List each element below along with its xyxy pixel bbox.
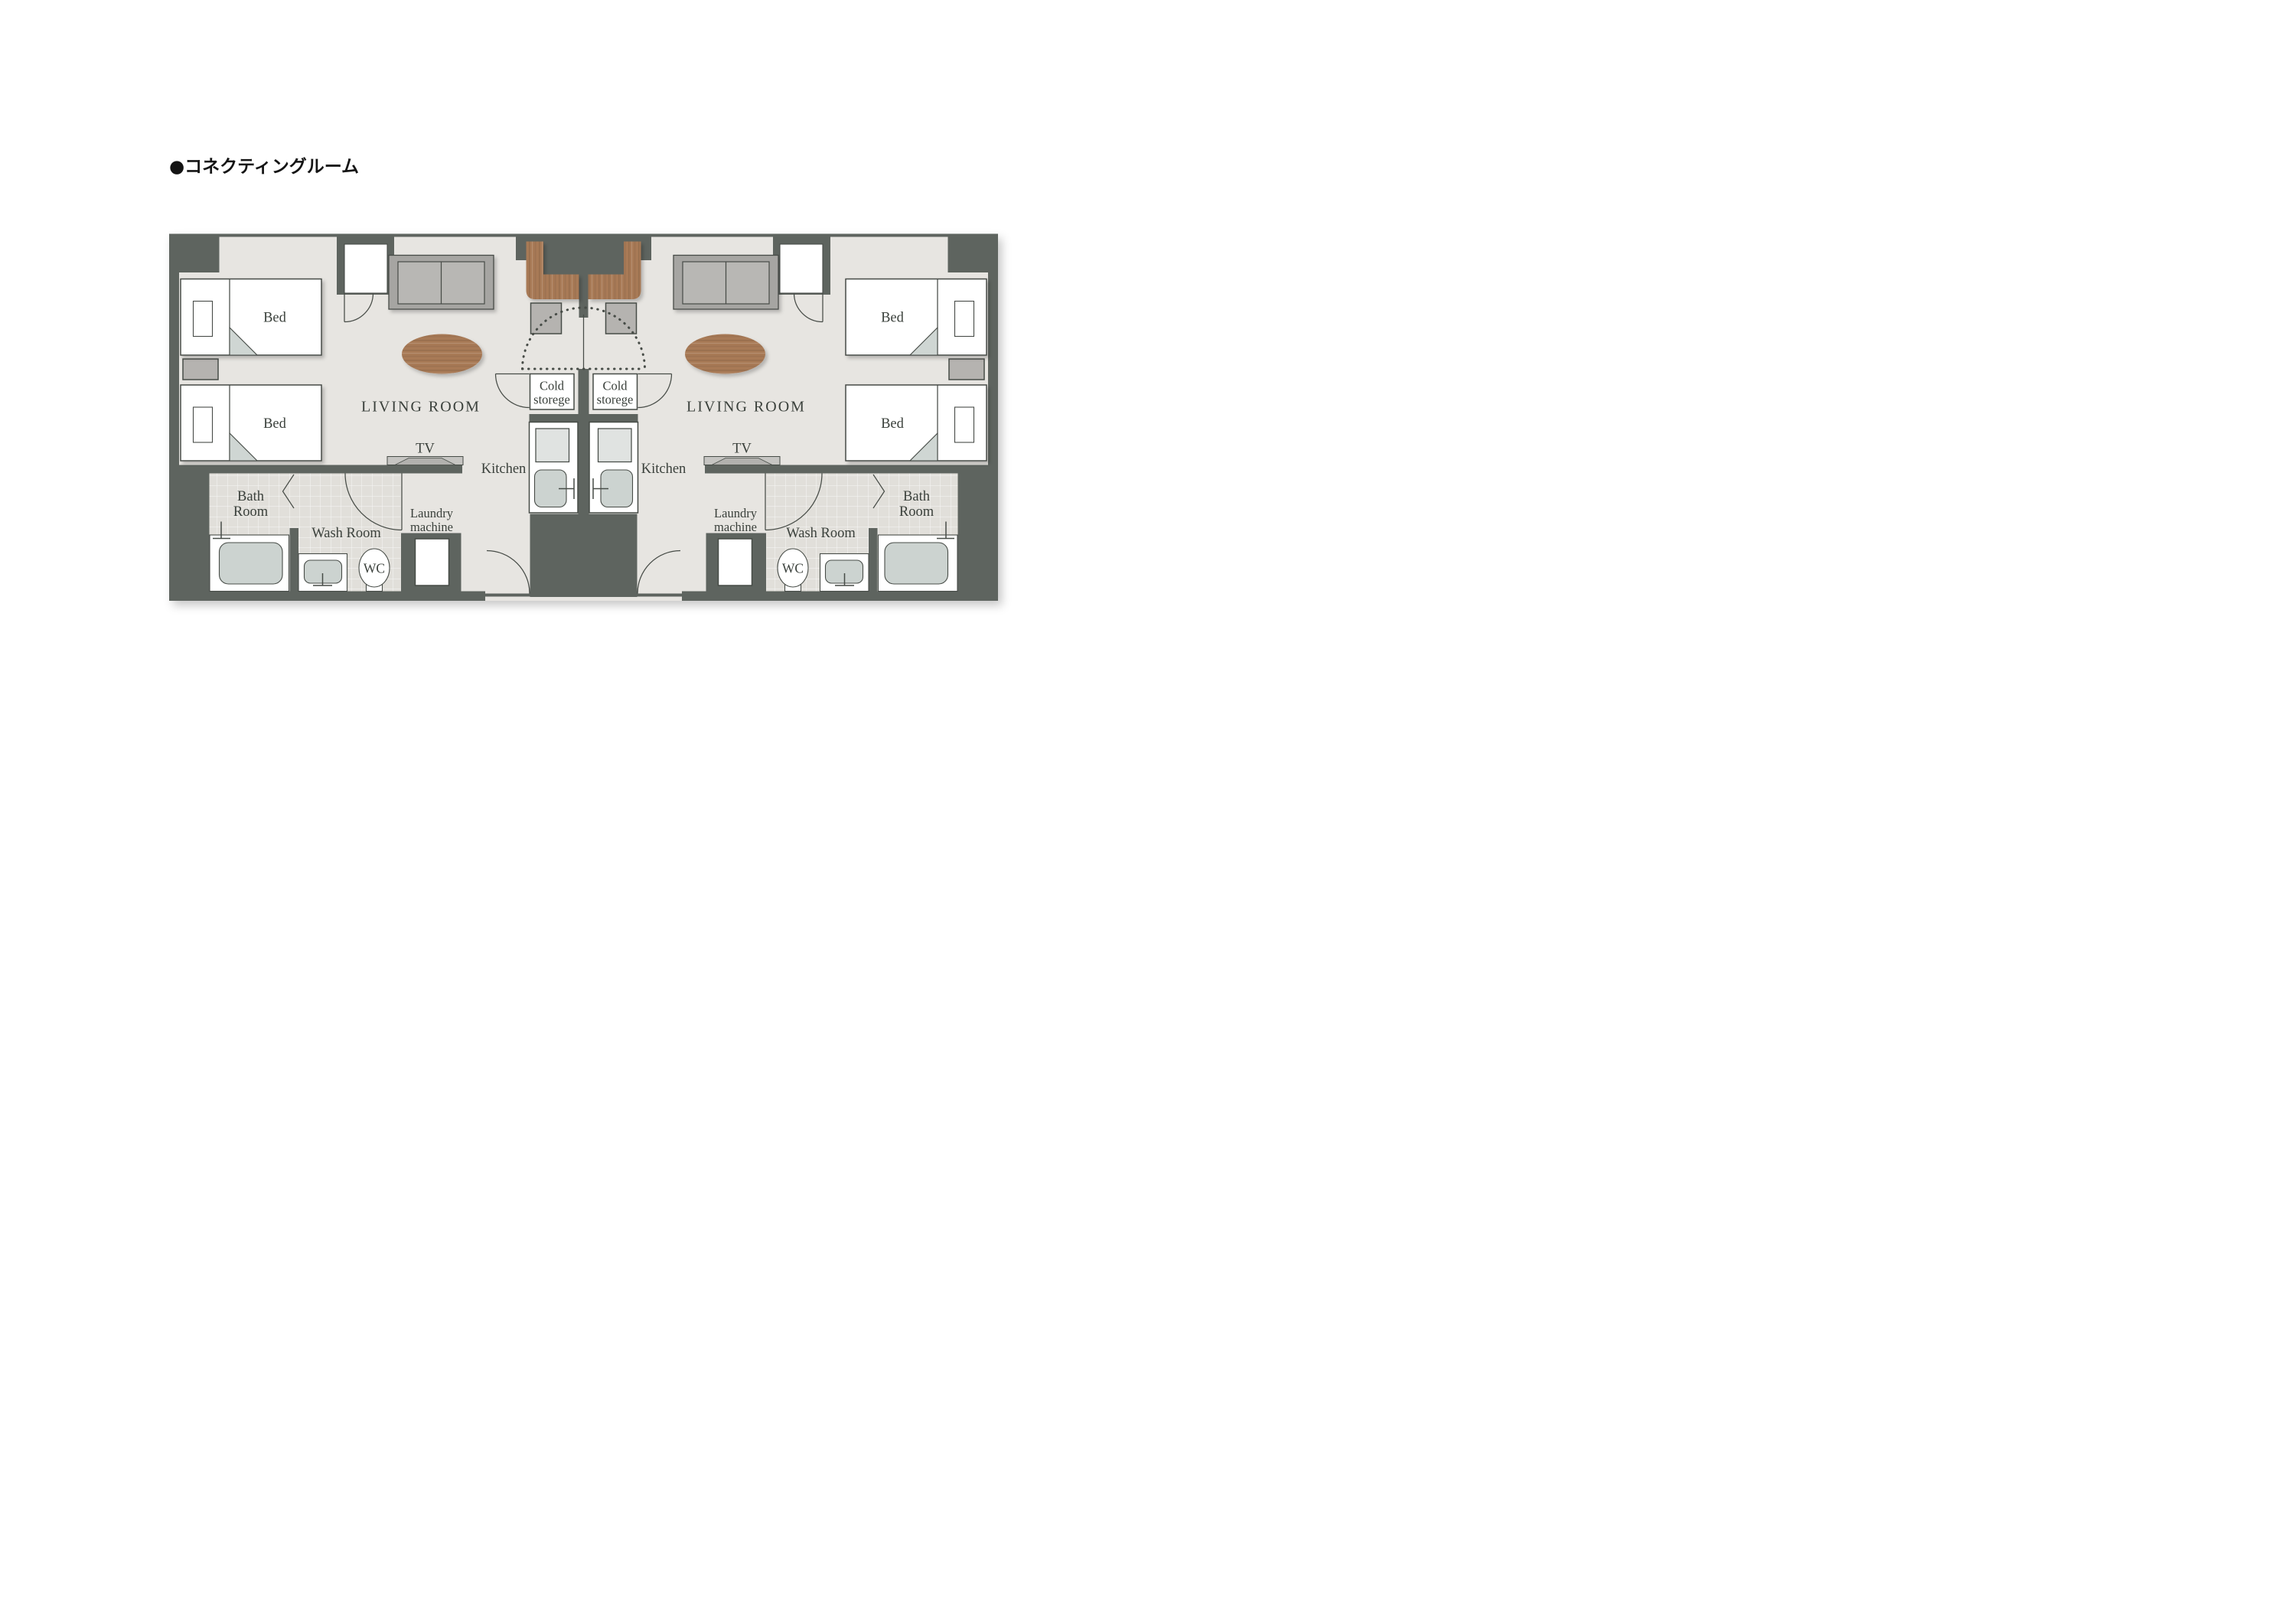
pillow (194, 407, 213, 442)
bed-label: Bed (263, 311, 287, 326)
center-bottom-block (530, 514, 638, 598)
bath-room-label: Room (233, 504, 269, 520)
wall-corner-top-left (169, 234, 220, 273)
oval-table-left (402, 334, 482, 374)
entry-core-wall (543, 242, 624, 275)
bed-label: Bed (263, 416, 287, 432)
bed-left-2 (181, 385, 321, 461)
laundry-machine-right (719, 539, 752, 585)
entry-threshold-left (485, 594, 530, 597)
laundry-machine-left (416, 539, 449, 585)
cold-storage-label: storege (533, 393, 570, 407)
cold-storage-label: Cold (602, 379, 628, 393)
bath-zone-wall-left (169, 465, 462, 474)
kitchen-label: Kitchen (481, 462, 527, 477)
tv-label: TV (732, 442, 752, 457)
closet-right (780, 244, 823, 293)
tv-stand-left (387, 457, 463, 465)
bath-zone-wall-right (705, 465, 998, 474)
laundry-label: Laundry (410, 506, 454, 520)
bed-right-2 (846, 385, 987, 461)
bath-room-label: Room (899, 504, 934, 520)
bed-right-1 (846, 279, 987, 356)
floor-plan-drawing: ●コネクティングルーム (0, 0, 1148, 810)
bed-left-1 (181, 279, 321, 356)
bed-label: Bed (881, 311, 905, 326)
wash-room-label: Wash Room (311, 526, 381, 541)
wc-label: WC (782, 561, 804, 576)
stove-right (598, 429, 632, 462)
page-title: ●コネクティングルーム (169, 156, 359, 177)
wash-basin-right (820, 554, 869, 592)
oval-table-right (685, 334, 765, 374)
kitchen-label: Kitchen (641, 462, 687, 477)
laundry-label: machine (714, 520, 757, 534)
entry-threshold-right (638, 594, 683, 597)
bath-room-label: Bath (903, 489, 930, 504)
cold-storage-label: Cold (540, 379, 565, 393)
wash-room-label: Wash Room (786, 526, 856, 541)
wc-label: WC (364, 561, 385, 576)
stool-right (606, 303, 637, 334)
party-wall (579, 369, 589, 514)
sofa-left (389, 256, 494, 310)
bed-label: Bed (881, 416, 905, 432)
laundry-label: Laundry (714, 506, 758, 520)
pillow (194, 302, 213, 337)
kitchen-unit-left (530, 422, 579, 514)
pillow (955, 407, 974, 442)
tv-stand-right (704, 457, 780, 465)
laundry-label: machine (410, 520, 453, 534)
tv-label: TV (416, 442, 435, 457)
stove-left (536, 429, 569, 462)
entry-top-wall (516, 234, 651, 242)
kitchen-unit-right (589, 422, 638, 514)
nightstand-right (949, 359, 984, 380)
bath-room-label: Bath (237, 489, 264, 504)
cold-storage-label: storege (597, 393, 634, 407)
stool-left (531, 303, 562, 334)
nightstand-left (183, 359, 218, 380)
living-room-label: LIVING ROOM (687, 399, 806, 416)
living-room-label: LIVING ROOM (361, 399, 481, 416)
wall-corner-top-right (948, 234, 999, 273)
sofa-right (673, 256, 778, 310)
pillow (955, 302, 974, 337)
closet-left (344, 244, 387, 293)
wash-basin-left (298, 554, 347, 592)
floor-plan-page: ●コネクティングルーム (0, 0, 1148, 810)
